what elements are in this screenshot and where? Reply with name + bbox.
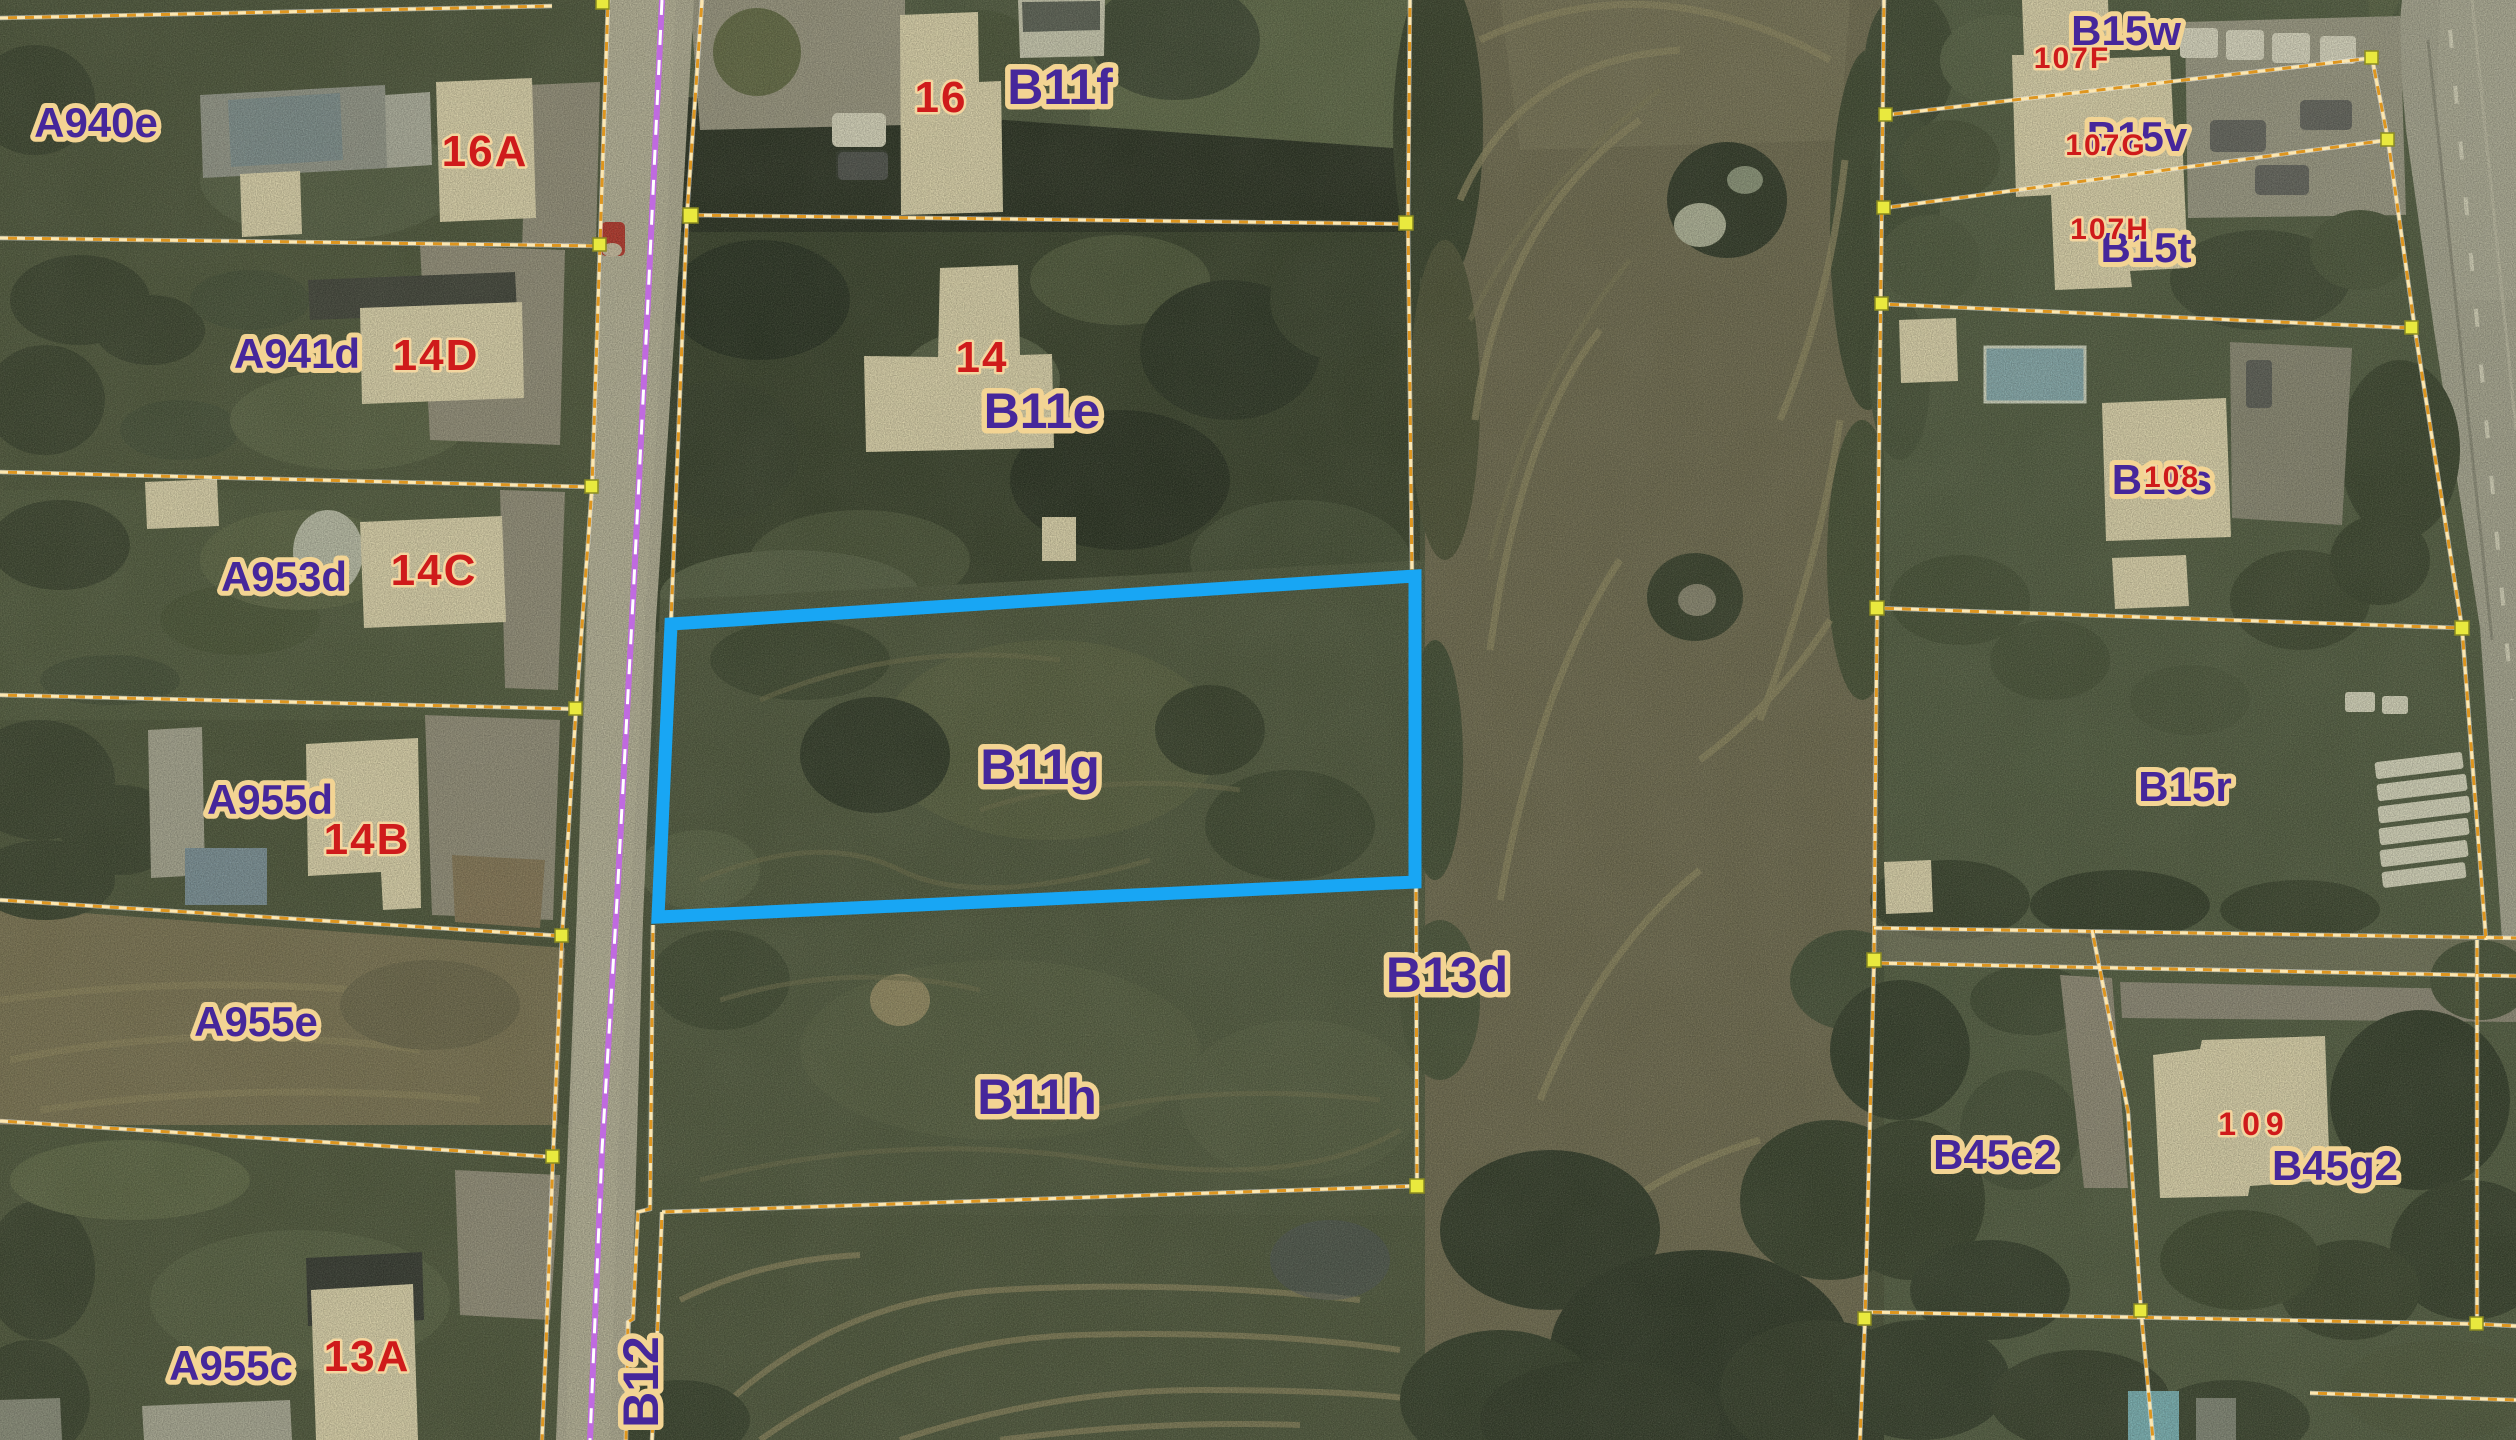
svg-text:14D: 14D (393, 331, 480, 380)
svg-text:14B: 14B (324, 815, 411, 864)
svg-text:107G: 107G (2065, 129, 2146, 162)
svg-text:A941d: A941d (234, 330, 360, 377)
svg-text:A955e: A955e (194, 998, 318, 1045)
svg-text:A940e: A940e (34, 99, 158, 146)
svg-text:B45g2: B45g2 (2272, 1142, 2398, 1189)
svg-text:A953d: A953d (221, 553, 347, 600)
svg-text:B11e: B11e (984, 383, 1101, 439)
svg-text:107H: 107H (2070, 213, 2150, 246)
svg-text:B13d: B13d (1386, 947, 1508, 1003)
svg-text:A955d: A955d (207, 776, 333, 823)
svg-text:13A: 13A (324, 1332, 411, 1381)
svg-text:107F: 107F (2034, 42, 2110, 75)
svg-text:B12: B12 (613, 1336, 669, 1428)
svg-text:B11h: B11h (977, 1069, 1097, 1125)
svg-text:B11g: B11g (980, 739, 1100, 795)
svg-text:16: 16 (915, 73, 968, 122)
svg-text:B45e2: B45e2 (1933, 1131, 2057, 1178)
svg-text:14: 14 (956, 333, 1009, 382)
svg-text:A955c: A955c (169, 1342, 293, 1389)
svg-text:108: 108 (2144, 461, 2200, 494)
svg-text:109: 109 (2218, 1106, 2289, 1142)
svg-text:B11f: B11f (1007, 59, 1113, 115)
svg-text:14C: 14C (391, 546, 478, 595)
svg-text:16A: 16A (442, 127, 529, 176)
svg-text:B15r: B15r (2138, 763, 2231, 810)
